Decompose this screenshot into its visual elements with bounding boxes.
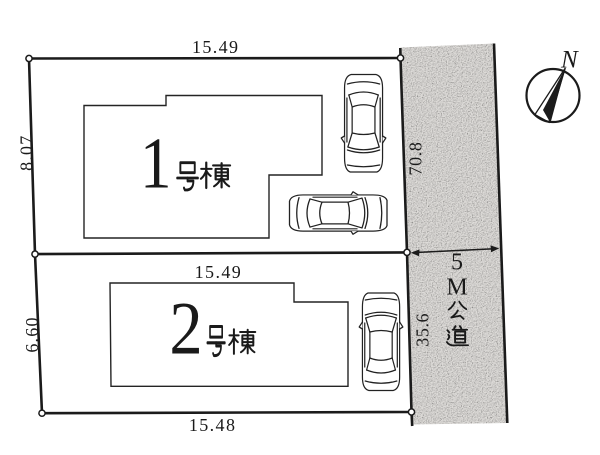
svg-text:35.6: 35.6 [413, 313, 433, 347]
svg-text:15.49: 15.49 [195, 262, 243, 282]
svg-text:6.60: 6.60 [22, 316, 42, 352]
svg-text:15.49: 15.49 [192, 37, 240, 57]
svg-text:M: M [446, 275, 467, 301]
svg-text:5: 5 [451, 250, 463, 276]
svg-text:N: N [560, 47, 579, 74]
svg-text:15.48: 15.48 [189, 415, 237, 435]
svg-text:8.07: 8.07 [17, 135, 37, 171]
svg-text:1: 1 [140, 122, 171, 204]
svg-text:2: 2 [169, 288, 202, 371]
svg-text:70.8: 70.8 [406, 142, 426, 176]
